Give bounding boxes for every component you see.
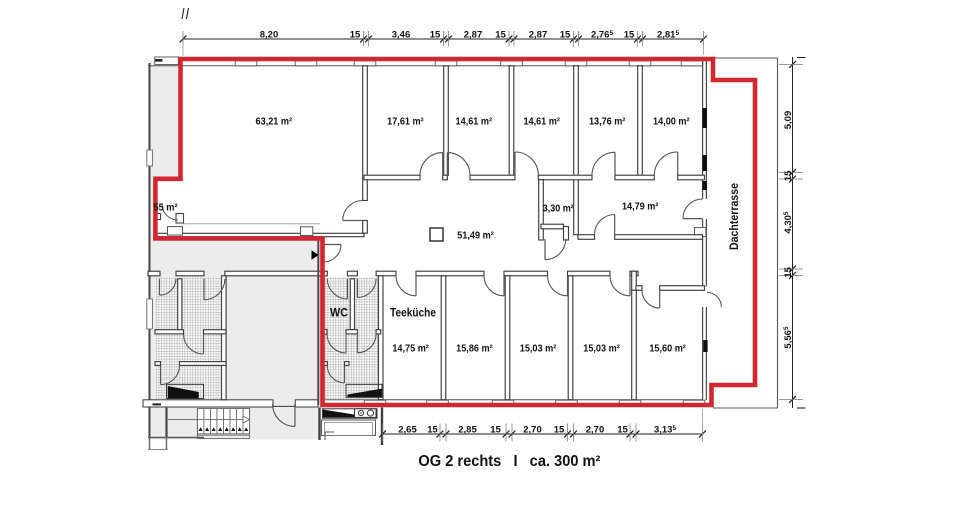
svg-text:15: 15	[350, 30, 361, 41]
svg-text:15: 15	[783, 266, 794, 277]
svg-text:OG 2 rechts I ca. 300 m²: OG 2 rechts I ca. 300 m²	[418, 453, 600, 470]
svg-text:15: 15	[624, 30, 635, 41]
svg-text:15,86 m²: 15,86 m²	[456, 344, 493, 355]
svg-text:3,46: 3,46	[392, 30, 411, 41]
svg-text:15: 15	[430, 30, 441, 41]
svg-text:5,09: 5,09	[783, 111, 794, 130]
svg-text:14,61 m²: 14,61 m²	[523, 117, 560, 128]
svg-text:2,87: 2,87	[529, 30, 548, 41]
svg-text:15: 15	[554, 424, 565, 435]
svg-text:14,79 m²: 14,79 m²	[622, 202, 659, 213]
svg-text:15,03 m²: 15,03 m²	[583, 344, 620, 355]
svg-text:14,61 m²: 14,61 m²	[456, 117, 493, 128]
svg-text:55 m²: 55 m²	[154, 203, 179, 214]
svg-text:15: 15	[783, 170, 794, 181]
svg-text:15: 15	[427, 424, 438, 435]
svg-text:2,87: 2,87	[464, 30, 483, 41]
svg-text:63,21 m²: 63,21 m²	[256, 117, 293, 128]
svg-text:15: 15	[490, 424, 501, 435]
svg-text:15: 15	[617, 424, 628, 435]
svg-text:2,85: 2,85	[458, 424, 477, 435]
svg-text:Teeküche: Teeküche	[390, 307, 436, 319]
svg-text:17,61 m²: 17,61 m²	[387, 117, 424, 128]
svg-text:51,49 m²: 51,49 m²	[457, 231, 494, 242]
svg-text:15: 15	[495, 30, 506, 41]
svg-text:15,60 m²: 15,60 m²	[649, 344, 686, 355]
svg-text:14,00 m²: 14,00 m²	[653, 117, 690, 128]
svg-text:2,65: 2,65	[398, 424, 417, 435]
svg-text:15: 15	[560, 30, 571, 41]
svg-text:WC: WC	[330, 308, 348, 320]
svg-text:Dachterrasse: Dachterrasse	[727, 183, 741, 250]
svg-text:2,70: 2,70	[523, 424, 542, 435]
svg-text:15,03 m²: 15,03 m²	[520, 344, 557, 355]
svg-text:8,20: 8,20	[260, 30, 279, 41]
svg-text:13,76 m²: 13,76 m²	[589, 117, 626, 128]
svg-text:14,75 m²: 14,75 m²	[392, 344, 429, 355]
svg-text:2,70: 2,70	[586, 424, 605, 435]
svg-text:3,30 m²: 3,30 m²	[543, 204, 574, 215]
